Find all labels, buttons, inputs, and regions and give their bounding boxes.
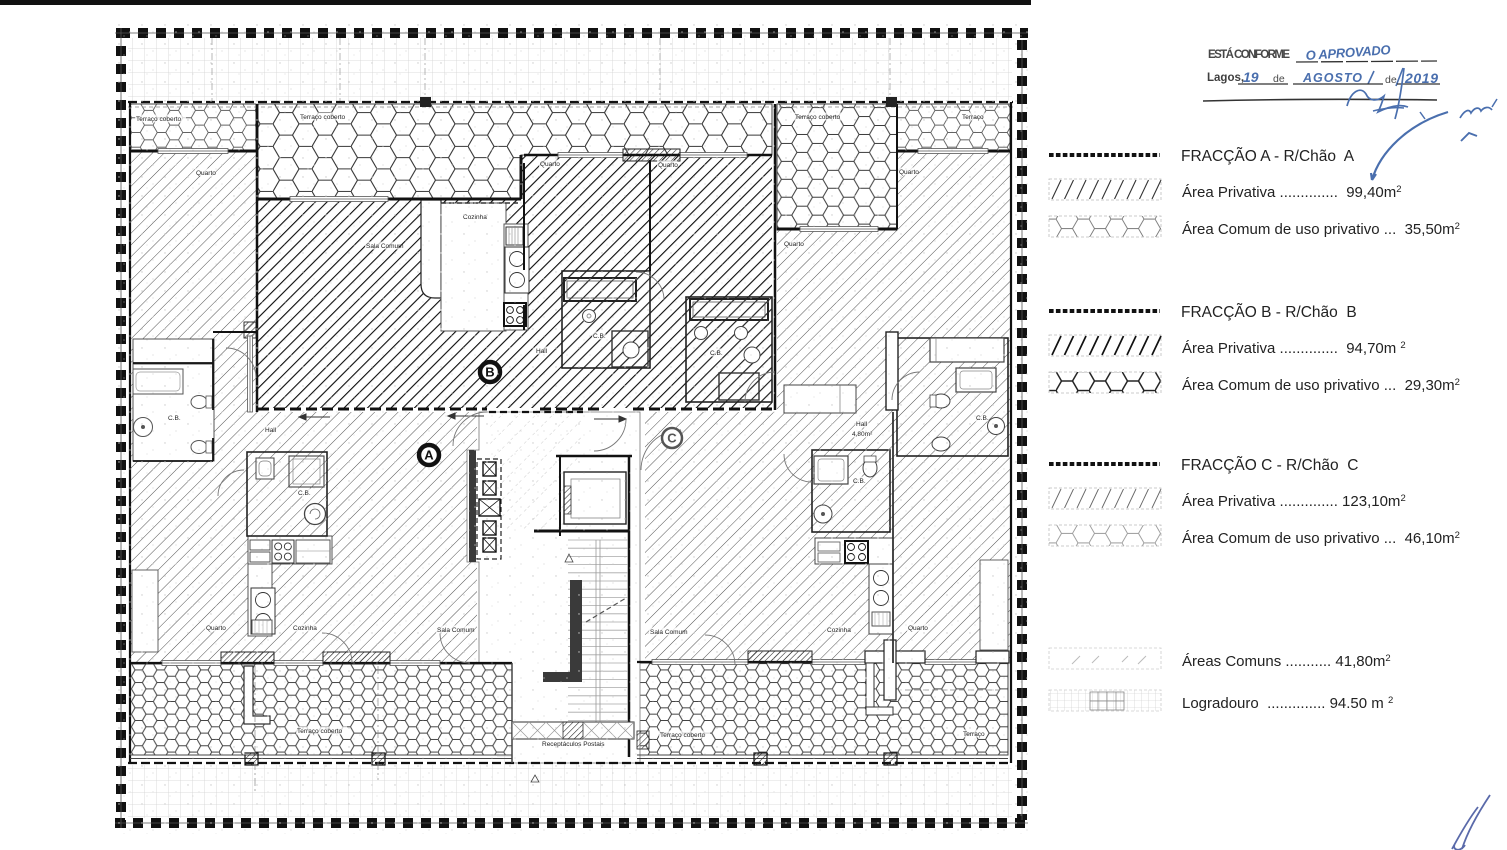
svg-text:Áreas Comuns ........... 41,80: Áreas Comuns ........... 41,80m2: [1182, 653, 1391, 670]
svg-text:Área Privativa ..............: Área Privativa .............. 123,10m2: [1182, 493, 1406, 510]
svg-text:AGOSTO: AGOSTO: [1302, 71, 1362, 85]
svg-text:de: de: [1385, 74, 1397, 86]
svg-text:19: 19: [1243, 69, 1259, 85]
svg-text:Área Comum de uso privativo ..: Área Comum de uso privativo ... 35,50m2: [1182, 221, 1460, 238]
svg-text:Área Comum de uso privativo ..: Área Comum de uso privativo ... 29,30m2: [1182, 377, 1460, 394]
svg-text:FRACÇÃO C - R/Chão C: FRACÇÃO C - R/Chão C: [1181, 457, 1358, 474]
svg-text:FRACÇÃO B - R/Chão B: FRACÇÃO B - R/Chão B: [1181, 304, 1357, 321]
svg-text:Área Privativa ..............: Área Privativa .............. 94,70m 2: [1182, 340, 1406, 357]
svg-text:de: de: [1273, 73, 1285, 85]
svg-text:FRACÇÃO A - R/Chão A: FRACÇÃO A - R/Chão A: [1181, 148, 1355, 165]
svg-text:ESTÁ CONFORME: ESTÁ CONFORME: [1208, 48, 1290, 61]
svg-text:Área Privativa ..............: Área Privativa .............. 99,40m2: [1182, 184, 1402, 201]
svg-text:Lagos,: Lagos,: [1207, 72, 1244, 84]
svg-text:Logradouro .............. 94.: Logradouro .............. 94.50 m 2: [1182, 695, 1393, 712]
svg-text:Área Comum de uso privativo ..: Área Comum de uso privativo ... 46,10m2: [1182, 530, 1460, 547]
